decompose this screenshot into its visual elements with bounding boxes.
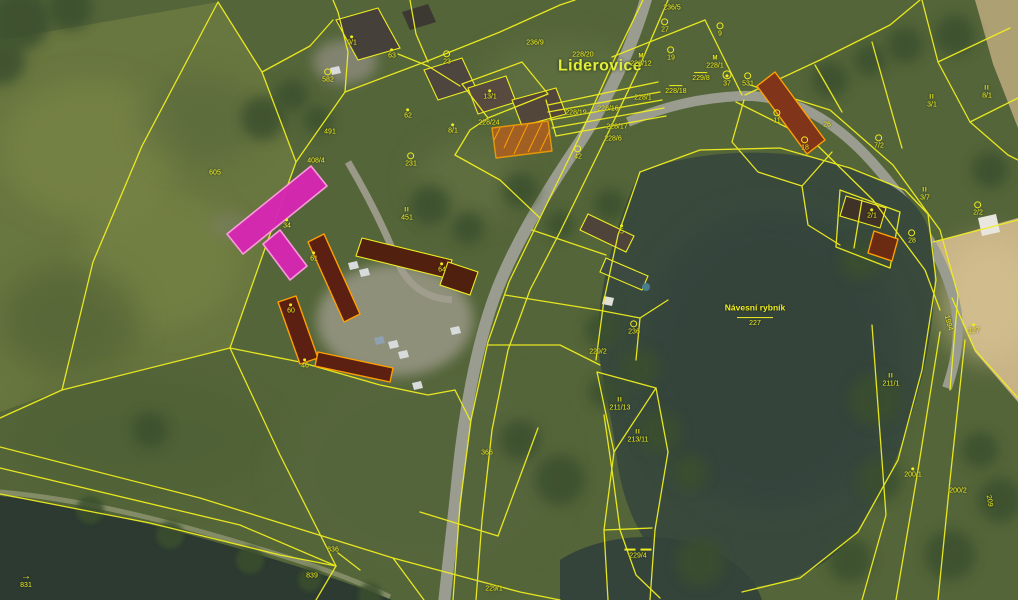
label-text: 28 <box>908 237 916 244</box>
parcel-label: 228/19 <box>565 109 586 116</box>
label-text: 229/8 <box>692 75 710 82</box>
circle-symbol-icon <box>661 18 668 25</box>
label-text: 209 <box>984 495 993 508</box>
parcel-label: 37 <box>723 70 732 87</box>
parcel-label: 62 <box>404 108 412 119</box>
label-text: 211/13 <box>610 405 631 412</box>
label-text: 228/19 <box>565 109 586 116</box>
II-symbol-icon: II <box>984 86 989 92</box>
parcel-label: 60 <box>287 303 295 314</box>
circle-symbol-icon <box>667 46 674 53</box>
parcel-label: 63 <box>388 48 396 59</box>
parcel-label: 227 <box>737 317 773 327</box>
parcel-label: 46 <box>301 358 309 369</box>
circle-symbol-icon <box>774 109 781 116</box>
label-text: 8/1 <box>448 127 458 134</box>
bar-symbol-icon <box>669 85 682 86</box>
label-text: 23 <box>443 58 451 65</box>
parcel-label: 19 <box>667 46 675 61</box>
parcel-label: 209 <box>984 495 993 508</box>
II-symbol-icon: II <box>888 374 893 380</box>
parcel-label: II451 <box>401 208 413 223</box>
label-text: 11 <box>773 117 780 124</box>
parcel-label: 605 <box>209 169 221 176</box>
label-text: 228/6 <box>604 135 622 142</box>
parcel-label: 229/1 <box>485 585 503 592</box>
circle-symbol-icon <box>631 320 638 327</box>
label-text: 42 <box>574 153 582 160</box>
circle-symbol-icon <box>745 72 752 79</box>
parcel-label: 127 <box>968 323 980 334</box>
parcel-label: 836 <box>327 546 339 553</box>
label-text: 228/17 <box>606 123 627 130</box>
dot-symbol-icon <box>289 303 292 306</box>
label-text: 211/1 <box>883 381 900 388</box>
ring-symbol-icon <box>723 70 732 79</box>
parcel-label: 228/1 <box>634 94 652 101</box>
circle-symbol-icon <box>801 136 808 143</box>
dot-symbol-icon <box>451 123 454 126</box>
label-text: 451 <box>401 215 413 222</box>
parcel-label: M228/1 <box>706 56 724 71</box>
parcel-label: 200/1 <box>904 467 922 478</box>
label-text: 491 <box>324 128 336 135</box>
parcel-label: 228/6 <box>604 135 622 142</box>
parcel-label: 839 <box>306 572 318 579</box>
parcel-label: 1994 <box>942 315 953 332</box>
circle-symbol-icon <box>974 201 981 208</box>
parcel-label: 229/8 <box>692 72 710 82</box>
parcel-label: →831 <box>20 573 32 589</box>
parcel-label: 42 <box>574 145 582 160</box>
label-text: 7/2 <box>874 142 884 149</box>
dot-symbol-icon <box>312 251 315 254</box>
parcel-label: 200/2 <box>949 487 967 494</box>
label-text: 3/7 <box>920 195 930 202</box>
parcel-label: II3/1 <box>927 95 937 110</box>
parcel-label: 34 <box>283 218 291 229</box>
label-text: 18 <box>801 144 809 151</box>
parcel-label: II3/7 <box>920 188 930 203</box>
parcel-label: 26 <box>823 121 831 128</box>
village-name-label: Liderovice <box>558 59 642 76</box>
parcel-label: 9 <box>717 22 724 37</box>
label-text: 229/4 <box>629 552 647 559</box>
map-canvas[interactable]: LideroviceNávesní rybník2279/1635822313/… <box>0 0 1018 600</box>
label-text: 236/5 <box>663 4 681 11</box>
bar2-symbol-icon <box>625 549 652 551</box>
label-text: 34 <box>283 222 291 229</box>
label-text: 27 <box>661 26 669 33</box>
II-symbol-icon: II <box>922 188 927 194</box>
parcel-label: 231 <box>405 152 417 167</box>
label-text: 228/20 <box>572 51 593 58</box>
label-text: 228/18 <box>665 88 686 95</box>
parcel-label: 23 <box>443 50 451 65</box>
parcel-label: M228/12 <box>630 54 651 69</box>
label-text: 1994 <box>942 315 953 332</box>
label-text: 228/1 <box>706 63 724 70</box>
label-text: 3/1 <box>927 102 937 109</box>
circle-symbol-icon <box>574 145 581 152</box>
parcel-label: 64 <box>438 262 446 273</box>
label-text: 200/1 <box>904 471 922 478</box>
label-text: 9/1 <box>347 39 357 46</box>
parcel-label: 582 <box>322 68 334 83</box>
parcel-label: 408/4 <box>307 157 325 164</box>
label-text: 836 <box>327 546 339 553</box>
dot-symbol-icon <box>285 218 288 221</box>
label-text: 2/2 <box>973 209 983 216</box>
label-text: 831 <box>20 582 32 589</box>
parcel-label: 228/18 <box>665 85 686 95</box>
label-text: Liderovice <box>558 59 642 76</box>
pond-name-label: Návesní rybník <box>725 304 785 313</box>
label-text: 19 <box>667 54 675 61</box>
II-symbol-icon: II <box>635 430 640 436</box>
II-symbol-icon: II <box>617 398 622 404</box>
parcel-label: 2/2 <box>973 201 983 216</box>
bartop-symbol-icon <box>737 317 773 318</box>
parcel-label: 236/9 <box>526 39 544 46</box>
arrow-symbol-icon: → <box>21 573 31 581</box>
label-text: 408/4 <box>307 157 325 164</box>
label-text: 2/1 <box>867 212 877 219</box>
label-text: 228/12 <box>630 61 651 68</box>
label-text: Návesní rybník <box>725 304 785 313</box>
parcel-label: 236/5 <box>663 4 681 11</box>
dot-symbol-icon <box>406 108 409 111</box>
label-text: 605 <box>209 169 221 176</box>
circle-symbol-icon <box>875 134 882 141</box>
parcel-label: 9/1 <box>347 35 357 46</box>
parcel-label: 8/1 <box>448 123 458 134</box>
label-text: 236/9 <box>526 39 544 46</box>
dot-symbol-icon <box>489 89 492 92</box>
label-text: 236 <box>628 328 640 335</box>
label-text: 200/2 <box>949 487 967 494</box>
label-text: 37 <box>723 80 731 87</box>
dot-symbol-icon <box>973 323 976 326</box>
circle-symbol-icon <box>325 68 332 75</box>
dot-symbol-icon <box>912 467 915 470</box>
parcel-label: II211/13 <box>610 398 631 413</box>
parcel-label: II8/1 <box>982 86 992 101</box>
parcel-label: 27 <box>661 18 669 33</box>
label-text: 228/24 <box>478 119 499 126</box>
dot-symbol-icon <box>350 35 353 38</box>
parcel-label: 228/20 <box>572 51 593 58</box>
label-text: 229/2 <box>589 348 607 355</box>
circle-symbol-icon <box>408 152 415 159</box>
parcel-label: 228/16 <box>597 105 618 112</box>
label-text: 64 <box>438 266 446 273</box>
M-symbol-icon: M <box>638 54 643 60</box>
label-text: 366 <box>481 449 493 456</box>
label-text: 229/1 <box>485 585 503 592</box>
parcel-label: 229/4 <box>625 549 652 560</box>
label-text: 62 <box>404 112 412 119</box>
parcel-label: 61 <box>310 251 318 262</box>
parcel-label: 228/17 <box>606 123 627 130</box>
dot-symbol-icon <box>870 208 873 211</box>
parcel-label: 491 <box>324 128 336 135</box>
label-text: 127 <box>968 327 980 334</box>
label-text: 5 <box>620 228 624 235</box>
parcel-label: II213/11 <box>628 430 649 445</box>
circle-symbol-icon <box>717 22 724 29</box>
circle-symbol-icon <box>908 229 915 236</box>
dot-symbol-icon <box>440 262 443 265</box>
dot-symbol-icon <box>303 358 306 361</box>
label-overlay: LideroviceNávesní rybník2279/1635822313/… <box>0 0 1018 600</box>
label-text: 228/1 <box>634 94 652 101</box>
II-symbol-icon: II <box>404 208 409 214</box>
parcel-label: 366 <box>481 449 493 456</box>
parcel-label: 11 <box>773 109 780 124</box>
label-text: 63 <box>388 52 396 59</box>
label-text: 60 <box>287 307 295 314</box>
parcel-label: 228/24 <box>478 119 499 126</box>
parcel-label: 531 <box>742 72 754 87</box>
dot-symbol-icon <box>621 224 624 227</box>
label-text: 61 <box>310 255 318 262</box>
parcel-label: 236 <box>628 320 640 335</box>
label-text: 213/11 <box>628 437 649 444</box>
parcel-label: 5 <box>620 224 624 235</box>
parcel-label: 7/2 <box>874 134 884 149</box>
label-text: 531 <box>742 80 754 87</box>
label-text: 227 <box>749 320 761 327</box>
parcel-label: 13/1 <box>483 89 497 100</box>
label-text: 13/1 <box>483 93 497 100</box>
label-text: 26 <box>823 121 831 128</box>
label-text: 839 <box>306 572 318 579</box>
label-text: 231 <box>405 160 417 167</box>
parcel-label: 28 <box>908 229 916 244</box>
label-text: 46 <box>301 362 309 369</box>
parcel-label: II211/1 <box>883 374 900 389</box>
parcel-label: 229/2 <box>589 348 607 355</box>
dot-symbol-icon <box>390 48 393 51</box>
circle-symbol-icon <box>443 50 450 57</box>
parcel-label: 2/1 <box>867 208 877 219</box>
label-text: 582 <box>322 76 334 83</box>
label-text: 8/1 <box>982 93 992 100</box>
bar-symbol-icon <box>695 72 708 73</box>
label-text: 9 <box>718 30 722 37</box>
parcel-label: 18 <box>801 136 809 151</box>
label-text: 228/16 <box>597 105 618 112</box>
M-symbol-icon: M <box>713 56 718 62</box>
II-symbol-icon: II <box>929 95 934 101</box>
